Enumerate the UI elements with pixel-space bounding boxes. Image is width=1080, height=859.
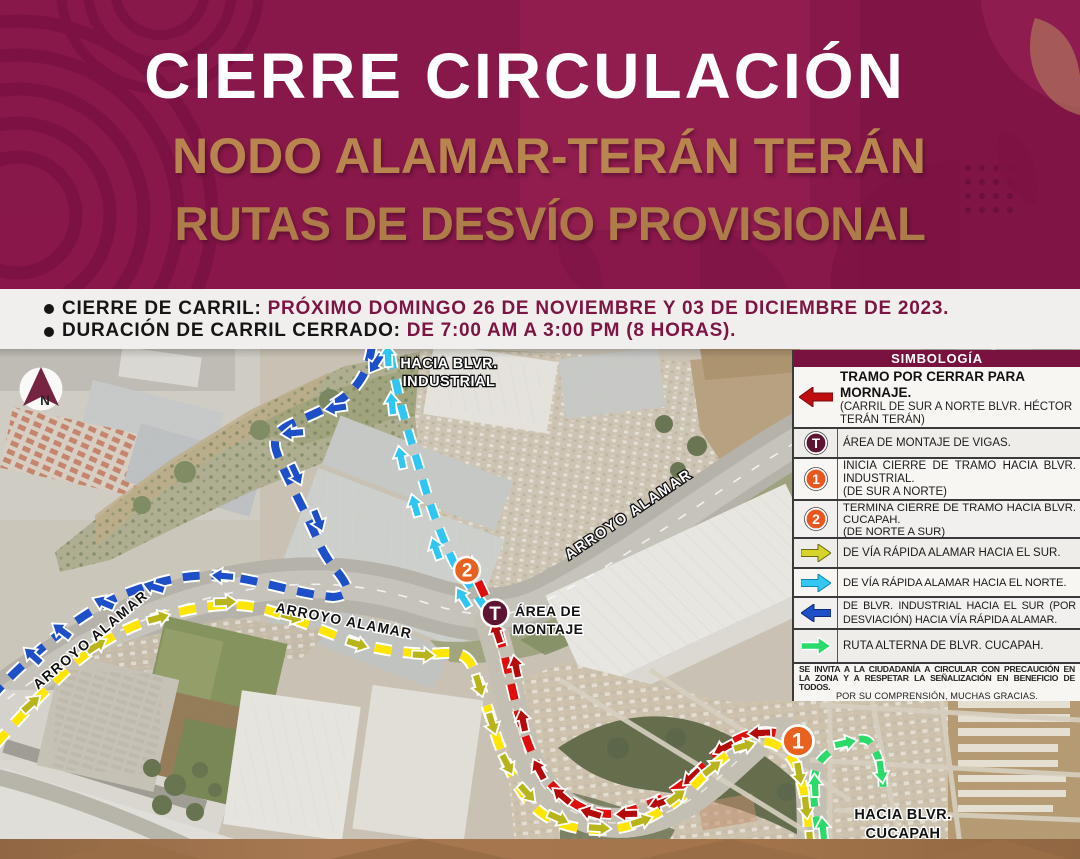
svg-text:2: 2: [462, 561, 473, 582]
svg-text:2: 2: [812, 511, 820, 527]
svg-text:1: 1: [812, 471, 820, 487]
svg-text:MONTAJE: MONTAJE: [513, 621, 584, 637]
svg-text:T: T: [811, 436, 820, 451]
svg-text:ÁREA DE: ÁREA DE: [515, 603, 581, 619]
svg-text:1: 1: [792, 729, 804, 754]
svg-text:T: T: [489, 604, 501, 625]
svg-text:HACIA BLVR.: HACIA BLVR.: [400, 356, 497, 372]
svg-text:HACIA BLVR.: HACIA BLVR.: [854, 807, 951, 823]
svg-text:INDUSTRIAL: INDUSTRIAL: [403, 374, 496, 390]
